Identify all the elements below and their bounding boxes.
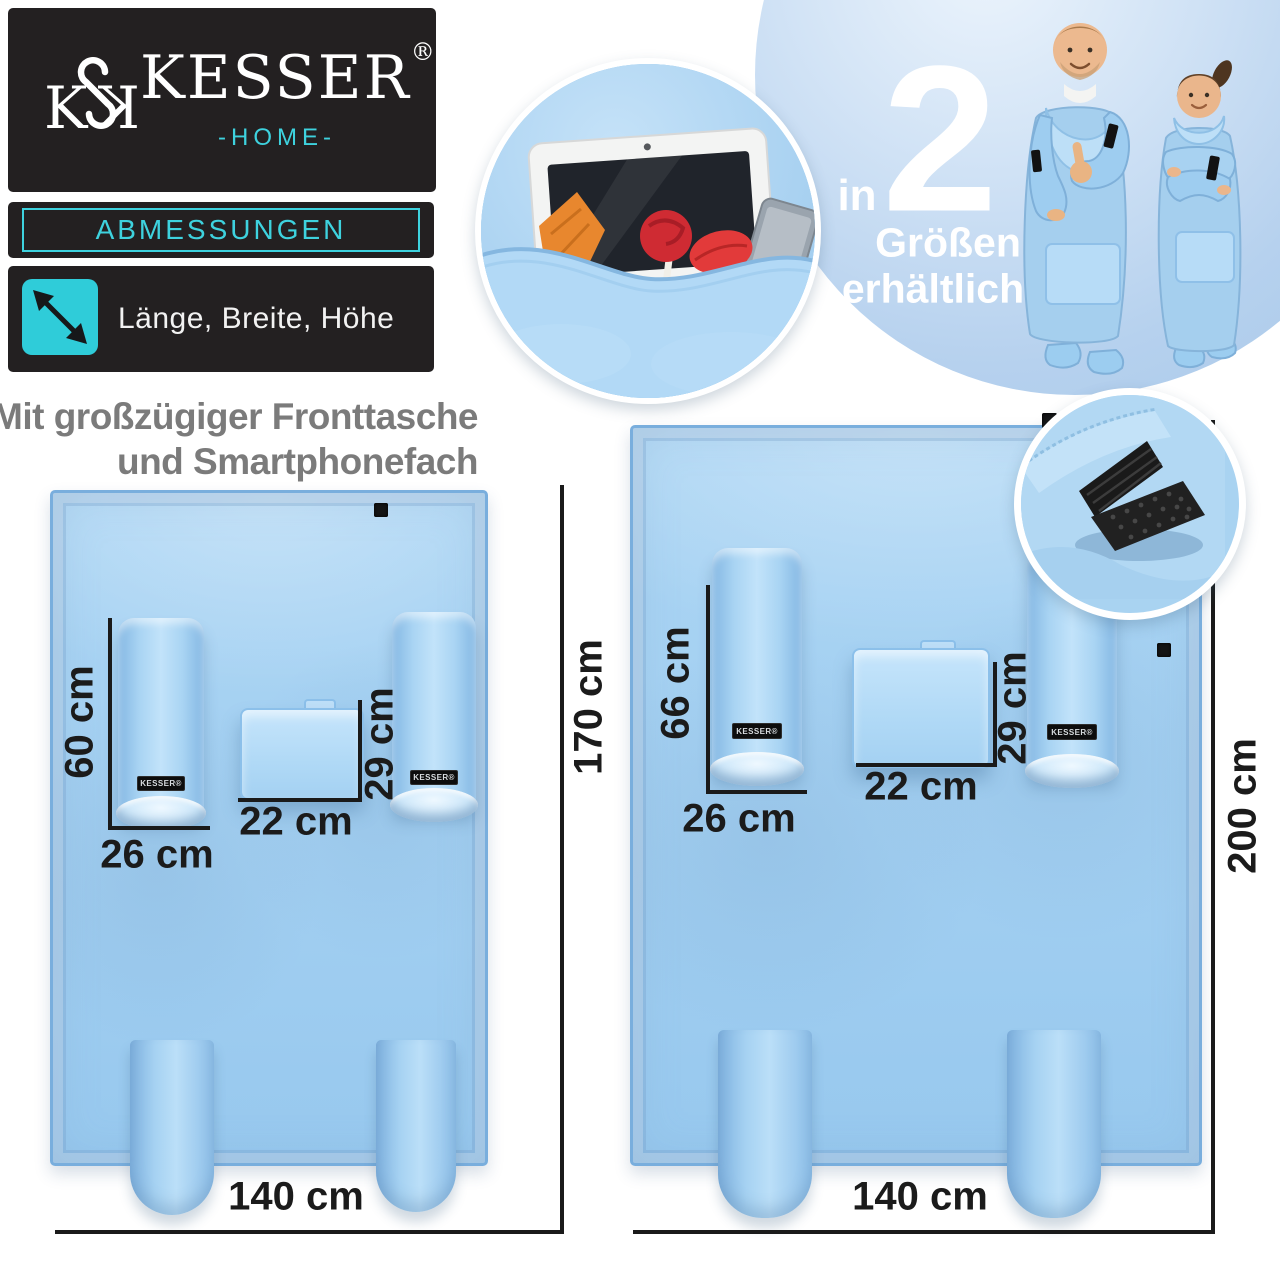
dim-label-pocket-height-1: 29 cm xyxy=(358,687,403,800)
dim-label-sleeve-length-2: 66 cm xyxy=(654,626,699,739)
dim-line-sleeve-width xyxy=(108,826,210,830)
sleeve-brand-patch: KESSER® xyxy=(137,776,185,791)
section-title: ABMESSUNGEN xyxy=(22,208,420,252)
dim-line-length xyxy=(560,485,564,1234)
brand-name-text: KESSER xyxy=(140,43,411,113)
dimension-arrow-iconbox xyxy=(22,279,98,355)
dim-label-length-1: 170 cm xyxy=(567,639,612,775)
dim-line-width xyxy=(633,1230,1215,1234)
dim-label-width-1: 140 cm xyxy=(228,1175,364,1220)
brand-name: KESSER® xyxy=(140,38,437,113)
front-pocket-1 xyxy=(240,708,364,800)
legend-panel: Länge, Breite, Höhe xyxy=(8,266,434,372)
page-root: in 2 Größen erhältlich xyxy=(0,0,1280,1280)
model-woman xyxy=(1159,57,1241,367)
dim-label-sleeve-width-2: 26 cm xyxy=(682,797,795,842)
sleeve-cuff xyxy=(710,752,804,786)
dim-line-width xyxy=(55,1230,564,1234)
promo-prefix: in xyxy=(837,171,876,221)
sleeve-1: KESSER® xyxy=(118,618,204,818)
dim-line-sleeve-length xyxy=(108,618,112,830)
model-man xyxy=(1024,23,1129,374)
dim-label-sleeve-width-1: 26 cm xyxy=(100,833,213,878)
velcro-photo xyxy=(1021,395,1225,599)
sleeve-3: KESSER® xyxy=(712,548,802,774)
sleeve-end xyxy=(1007,1030,1101,1218)
dim-label-pocket-width-2: 22 cm xyxy=(864,765,977,810)
sleeve-brand-patch: KESSER® xyxy=(1047,724,1097,740)
sleeve-cuff xyxy=(1025,754,1119,788)
dim-line-sleeve-width xyxy=(706,790,807,794)
legend-text: Länge, Breite, Höhe xyxy=(118,302,394,336)
sleeve-cuff xyxy=(116,796,206,830)
svg-text:K: K xyxy=(95,74,140,142)
models-photo xyxy=(960,0,1280,378)
headline-line2: und Smartphonefach xyxy=(117,441,478,483)
diagonal-resize-arrow-icon xyxy=(22,279,98,355)
sleeve-end xyxy=(718,1030,812,1218)
sleeve-end xyxy=(130,1040,214,1215)
velcro-dot xyxy=(374,503,388,517)
velcro-dot xyxy=(1157,643,1171,657)
dim-label-width-2: 140 cm xyxy=(852,1175,988,1220)
kesser-monogram-icon: K K xyxy=(44,52,140,156)
front-pocket-2 xyxy=(852,648,990,768)
sleeve-2: KESSER® xyxy=(392,612,476,810)
pocket-photo-circle xyxy=(475,58,821,404)
brand-home-label: -HOME- xyxy=(218,124,336,152)
dim-line-sleeve-length xyxy=(706,585,710,794)
section-bar: ABMESSUNGEN xyxy=(8,202,434,258)
sleeve-cuff xyxy=(390,788,478,822)
dim-label-length-2: 200 cm xyxy=(1221,738,1266,874)
brand-panel: K K KESSER® -HOME- xyxy=(8,8,436,192)
svg-text:K: K xyxy=(44,74,89,142)
dim-label-sleeve-length-1: 60 cm xyxy=(58,665,103,778)
headline-line1: Mit großzügiger Fronttasche xyxy=(0,396,478,438)
sleeve-end xyxy=(376,1040,456,1212)
sleeve-brand-patch: KESSER® xyxy=(410,770,458,785)
velcro-photo-circle xyxy=(1014,388,1246,620)
dim-label-pocket-width-1: 22 cm xyxy=(239,800,352,845)
dim-label-pocket-height-2: 29 cm xyxy=(991,651,1036,764)
brand-reg-mark: ® xyxy=(411,38,437,66)
sleeve-brand-patch: KESSER® xyxy=(732,723,782,739)
pocket-photo xyxy=(481,64,815,398)
